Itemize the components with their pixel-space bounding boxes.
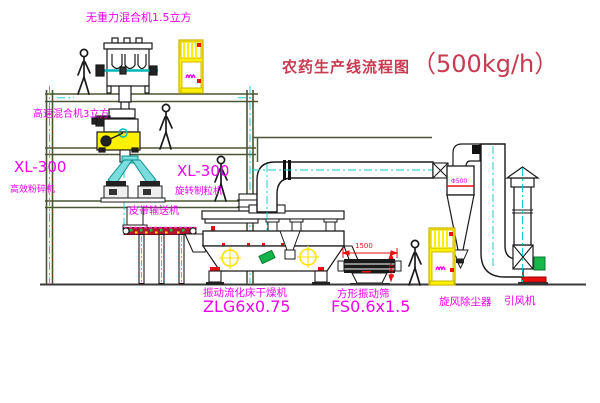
high-speed-mixer [92, 109, 140, 152]
flow-diagram-canvas: 农药生产线流程图 （500kg/h） 无重力混合机1.5立方 高速混合机3立方 … [0, 0, 600, 403]
person-figure [215, 156, 227, 201]
indicator-dot [450, 268, 454, 272]
vibrating-sieve [338, 248, 401, 286]
diagram-linework [0, 0, 600, 403]
fan-base [522, 277, 546, 282]
gravity-mixer [96, 38, 158, 110]
person-figure [409, 240, 421, 285]
indicator-dot [449, 232, 453, 236]
fan-motor [534, 257, 545, 270]
indicator-dot [197, 79, 201, 83]
granulator [101, 150, 165, 229]
distributor-chute [108, 160, 132, 184]
outlet-flange [472, 145, 481, 154]
bucket-elevator-2 [429, 228, 455, 285]
indicator-dot [197, 43, 201, 47]
mixer-discharge-pipe [119, 86, 131, 102]
induced-draft-fan [513, 245, 548, 285]
distributor-chute [132, 160, 156, 184]
granulator-discharge [127, 207, 143, 227]
cyclone-body [447, 166, 474, 195]
bucket-elevator-1 [179, 40, 203, 93]
person-figure [78, 49, 90, 94]
person-figure [160, 104, 172, 149]
belt-conveyor [123, 228, 196, 284]
